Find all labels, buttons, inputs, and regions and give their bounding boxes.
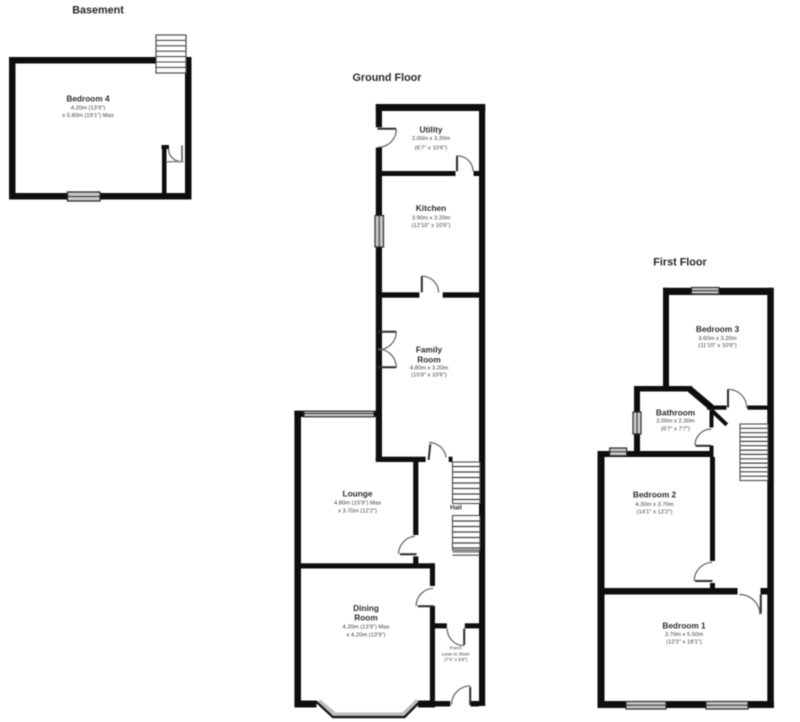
svg-text:Ground Floor: Ground Floor: [353, 72, 423, 84]
svg-text:x 4.20m (13'9"): x 4.20m (13'9"): [347, 632, 386, 638]
svg-text:Lounge: Lounge: [343, 489, 373, 499]
svg-text:2.00m x 3.20m: 2.00m x 3.20m: [412, 136, 451, 142]
svg-text:Bedroom 4: Bedroom 4: [66, 94, 110, 104]
svg-text:(14'1" x 12'2"): (14'1" x 12'2"): [637, 510, 673, 516]
svg-text:Bedroom 3: Bedroom 3: [696, 324, 740, 334]
svg-text:First Floor: First Floor: [653, 257, 707, 269]
svg-text:(11'10" x 10'6"): (11'10" x 10'6"): [698, 343, 737, 349]
svg-text:4.30m x 3.70m: 4.30m x 3.70m: [635, 502, 674, 508]
svg-text:Room: Room: [417, 354, 441, 364]
svg-text:Family: Family: [416, 345, 443, 355]
svg-text:Room: Room: [354, 613, 378, 623]
svg-text:Utility: Utility: [419, 125, 442, 135]
svg-text:3.60m x 3.20m: 3.60m x 3.20m: [698, 336, 737, 342]
svg-text:4.80m (15'9") Max: 4.80m (15'9") Max: [334, 501, 381, 507]
svg-text:Porch: Porch: [450, 646, 462, 651]
svg-text:(6'7" x 10'6"): (6'7" x 10'6"): [415, 146, 447, 152]
svg-text:Bathroom: Bathroom: [656, 408, 695, 418]
svg-text:4.20m (13'9"): 4.20m (13'9"): [71, 106, 105, 112]
svg-text:x 5.80m (19'1") Max: x 5.80m (19'1") Max: [62, 113, 114, 119]
svg-text:Bedroom 2: Bedroom 2: [633, 490, 677, 500]
svg-text:3.90m x 3.20m: 3.90m x 3.20m: [412, 216, 451, 222]
svg-text:Hall: Hall: [450, 505, 462, 512]
svg-text:(6'7" x 7'7"): (6'7" x 7'7"): [661, 427, 690, 433]
svg-text:x 3.70m (12'2"): x 3.70m (12'2"): [338, 509, 377, 515]
svg-text:4.80m x 3.20m: 4.80m x 3.20m: [410, 366, 449, 372]
svg-text:(12'10" x 10'6"): (12'10" x 10'6"): [412, 223, 451, 229]
svg-text:(15'9" x 10'6"): (15'9" x 10'6"): [411, 372, 447, 378]
svg-text:(12'2" x 18'1"): (12'2" x 18'1"): [666, 640, 702, 646]
svg-text:Basement: Basement: [72, 5, 124, 17]
svg-text:Lean to Store: Lean to Store: [442, 651, 470, 656]
svg-text:Dining: Dining: [353, 603, 379, 613]
svg-text:2.00m x 2.30m: 2.00m x 2.30m: [656, 419, 695, 425]
svg-text:Kitchen: Kitchen: [416, 203, 446, 213]
svg-text:Bedroom 1: Bedroom 1: [662, 621, 706, 631]
svg-text:4.20m (13'9") Max: 4.20m (13'9") Max: [343, 625, 390, 631]
svg-text:(7'4" x 5'8"): (7'4" x 5'8"): [444, 657, 468, 662]
svg-text:3.70m x 5.50m: 3.70m x 5.50m: [665, 632, 704, 638]
